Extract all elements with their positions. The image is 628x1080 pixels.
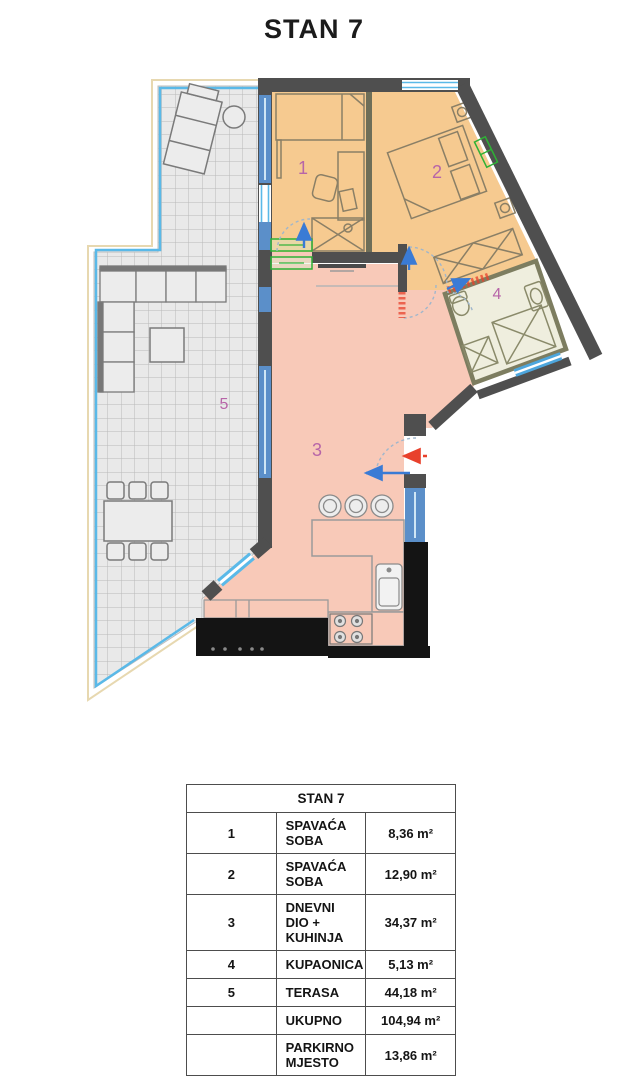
room-label-2: 2	[432, 162, 442, 182]
floor-plan-page: STAN 7	[0, 0, 628, 1080]
room-area: 34,37 m²	[366, 895, 456, 951]
areas-table: STAN 7 1 SPAVAĆA SOBA 8,36 m² 2 SPAVAĆA …	[186, 784, 456, 1076]
room-area: 44,18 m²	[366, 979, 456, 1007]
kitchen-cabinets	[204, 600, 328, 618]
room-name: SPAVAĆA SOBA	[276, 813, 366, 854]
row-number: 4	[187, 951, 277, 979]
row-number: 1	[187, 813, 277, 854]
row-number: 2	[187, 854, 277, 895]
dining-set	[104, 482, 172, 560]
room-name: UKUPNO	[276, 1007, 366, 1035]
row-number	[187, 1035, 277, 1076]
row-number: 3	[187, 895, 277, 951]
room-label-4: 4	[493, 286, 502, 303]
table-row: 5 TERASA 44,18 m²	[187, 979, 456, 1007]
table-row: 2 SPAVAĆA SOBA 12,90 m²	[187, 854, 456, 895]
room-area: 12,90 m²	[366, 854, 456, 895]
table-title: STAN 7	[187, 785, 456, 813]
terrace-round-table	[223, 106, 245, 128]
room-label-3: 3	[312, 440, 322, 460]
room-name: SPAVAĆA SOBA	[276, 854, 366, 895]
room-label-5: 5	[220, 396, 229, 413]
room-area: 13,86 m²	[366, 1035, 456, 1076]
bar-stools	[319, 495, 393, 517]
table-row: PARKIRNO MJESTO 13,86 m²	[187, 1035, 456, 1076]
table-header-row: STAN 7	[187, 785, 456, 813]
room-area: 104,94 m²	[366, 1007, 456, 1035]
terrace-coffee-table	[150, 328, 184, 362]
row-number: 5	[187, 979, 277, 1007]
table-row: UKUPNO 104,94 m²	[187, 1007, 456, 1035]
table-row: 1 SPAVAĆA SOBA 8,36 m²	[187, 813, 456, 854]
table-row: 3 DNEVNI DIO + KUHINJA 34,37 m²	[187, 895, 456, 951]
kitchen-sink	[376, 564, 402, 610]
floor-plan-drawing: 1 2 3 4 5	[0, 0, 628, 730]
room-label-1: 1	[298, 158, 308, 178]
room-name: PARKIRNO MJESTO	[276, 1035, 366, 1076]
room-area: 5,13 m²	[366, 951, 456, 979]
table-row: 4 KUPAONICA 5,13 m²	[187, 951, 456, 979]
room-name: KUPAONICA	[276, 951, 366, 979]
room-area: 8,36 m²	[366, 813, 456, 854]
room-name: TERASA	[276, 979, 366, 1007]
row-number	[187, 1007, 277, 1035]
room-name: DNEVNI DIO + KUHINJA	[276, 895, 366, 951]
